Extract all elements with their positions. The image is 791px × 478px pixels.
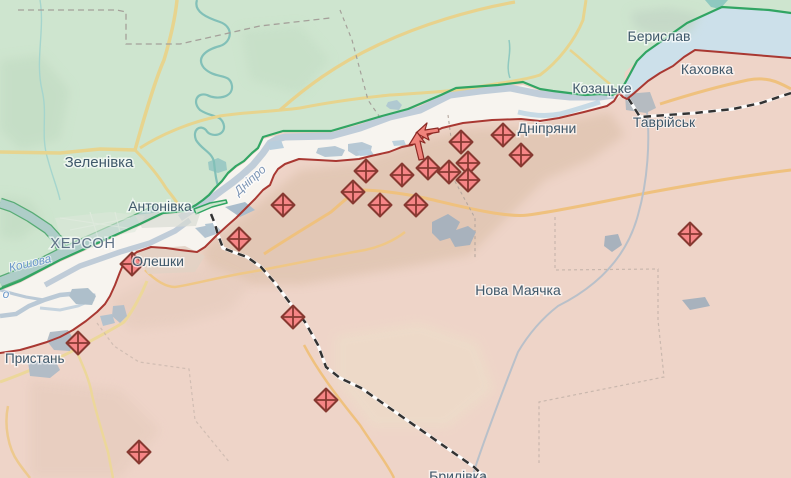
svg-text:Пристань: Пристань: [5, 351, 65, 366]
svg-text:Козацьке: Козацьке: [572, 80, 632, 96]
svg-text:Дніпряни: Дніпряни: [518, 120, 577, 136]
svg-text:Нова Маячка: Нова Маячка: [475, 282, 561, 298]
svg-text:ХЕРСОН: ХЕРСОН: [50, 236, 116, 252]
svg-text:Каховка: Каховка: [681, 61, 733, 77]
svg-text:Таврійськ: Таврійськ: [633, 114, 696, 130]
svg-text:Зеленівка: Зеленівка: [65, 154, 134, 171]
svg-text:о: о: [3, 287, 10, 301]
svg-text:Антонівка: Антонівка: [128, 198, 192, 214]
svg-text:Берислав: Берислав: [628, 28, 691, 44]
svg-text:Олешки: Олешки: [132, 253, 184, 269]
svg-text:Брилівка: Брилівка: [429, 468, 487, 478]
